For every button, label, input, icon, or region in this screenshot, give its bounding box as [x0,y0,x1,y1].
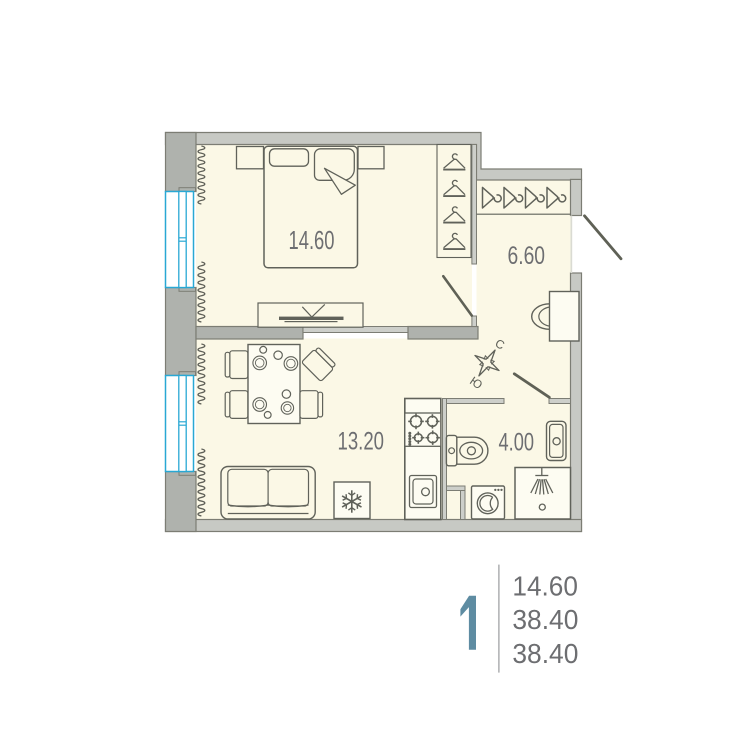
svg-text:4.00: 4.00 [499,428,535,456]
svg-text:14.60: 14.60 [512,571,578,602]
svg-text:38.40: 38.40 [512,604,578,635]
svg-text:14.60: 14.60 [289,227,335,255]
svg-text:6.60: 6.60 [508,242,546,270]
svg-text:13.20: 13.20 [338,428,385,456]
svg-text:38.40: 38.40 [512,638,578,669]
